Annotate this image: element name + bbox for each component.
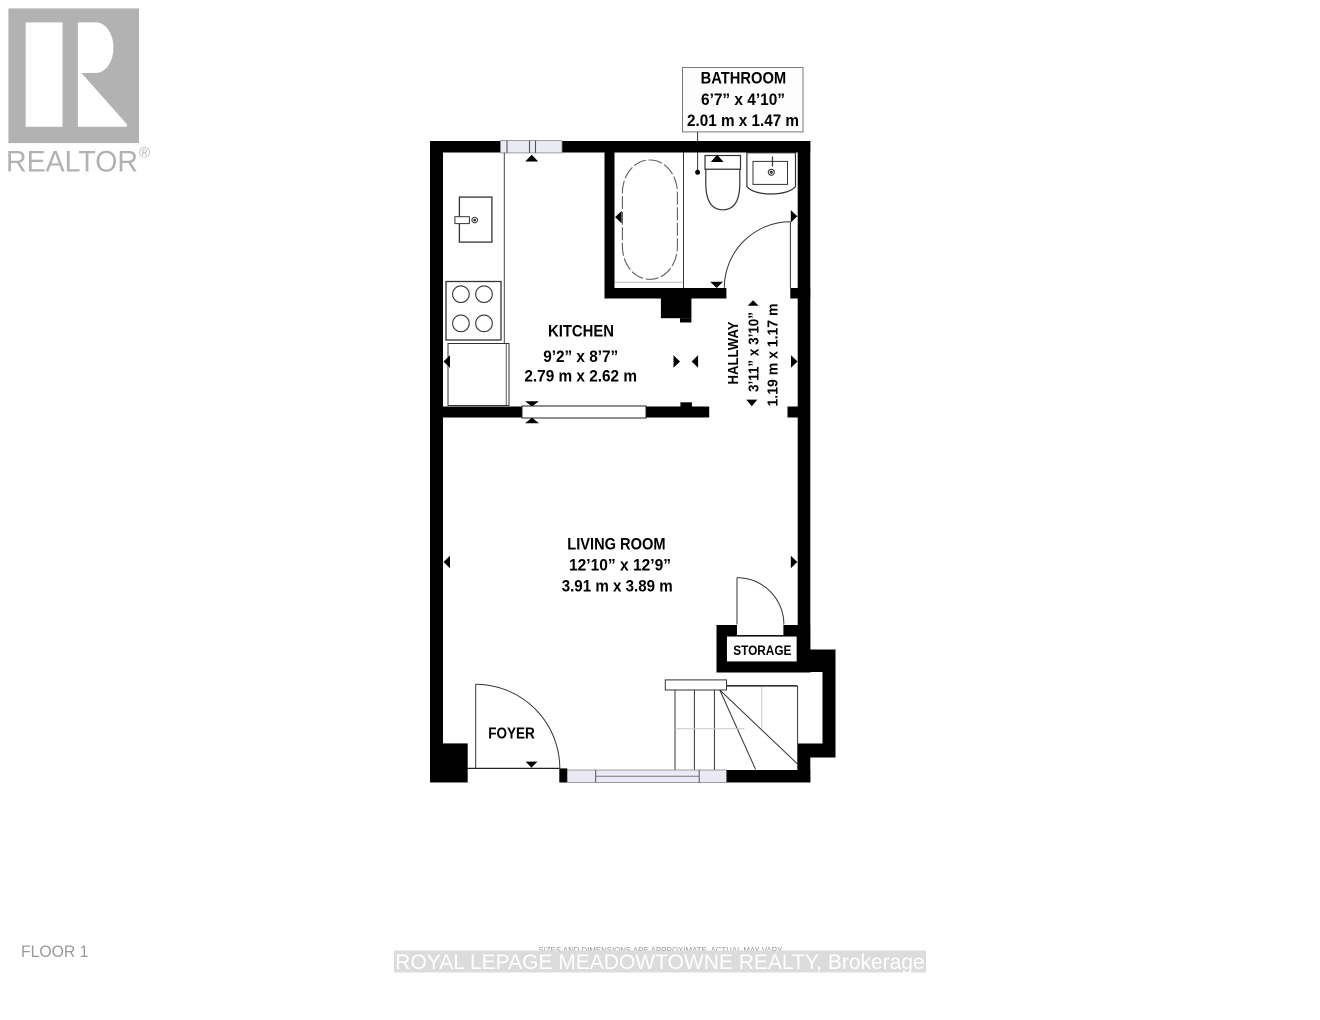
svg-text:3’11” x 3’10”: 3’11” x 3’10” <box>746 312 762 392</box>
svg-text:2.01 m x 1.47 m: 2.01 m x 1.47 m <box>687 111 799 130</box>
svg-text:12’10” x 12’9”: 12’10” x 12’9” <box>569 556 671 575</box>
svg-text:1.19 m x 1.17 m: 1.19 m x 1.17 m <box>766 304 782 407</box>
svg-text:BATHROOM: BATHROOM <box>701 69 787 87</box>
svg-text:9’2” x 8’7”: 9’2” x 8’7” <box>543 347 618 366</box>
svg-text:REALTOR: REALTOR <box>6 146 138 179</box>
svg-text:LIVING ROOM: LIVING ROOM <box>567 536 665 554</box>
svg-text:HALLWAY: HALLWAY <box>726 321 742 384</box>
svg-text:6’7” x 4’10”: 6’7” x 4’10” <box>701 90 785 109</box>
svg-text:®: ® <box>139 145 150 162</box>
svg-text:STORAGE: STORAGE <box>733 643 791 658</box>
svg-text:3.91 m x 3.89 m: 3.91 m x 3.89 m <box>562 577 673 596</box>
svg-text:FLOOR 1: FLOOR 1 <box>21 943 88 961</box>
svg-text:KITCHEN: KITCHEN <box>548 323 614 341</box>
svg-text:ROYAL LEPAGE MEADOWTOWNE REALT: ROYAL LEPAGE MEADOWTOWNE REALTY, Brokera… <box>395 951 924 974</box>
svg-text:2.79 m x 2.62 m: 2.79 m x 2.62 m <box>524 367 637 386</box>
svg-text:FOYER: FOYER <box>488 726 535 743</box>
